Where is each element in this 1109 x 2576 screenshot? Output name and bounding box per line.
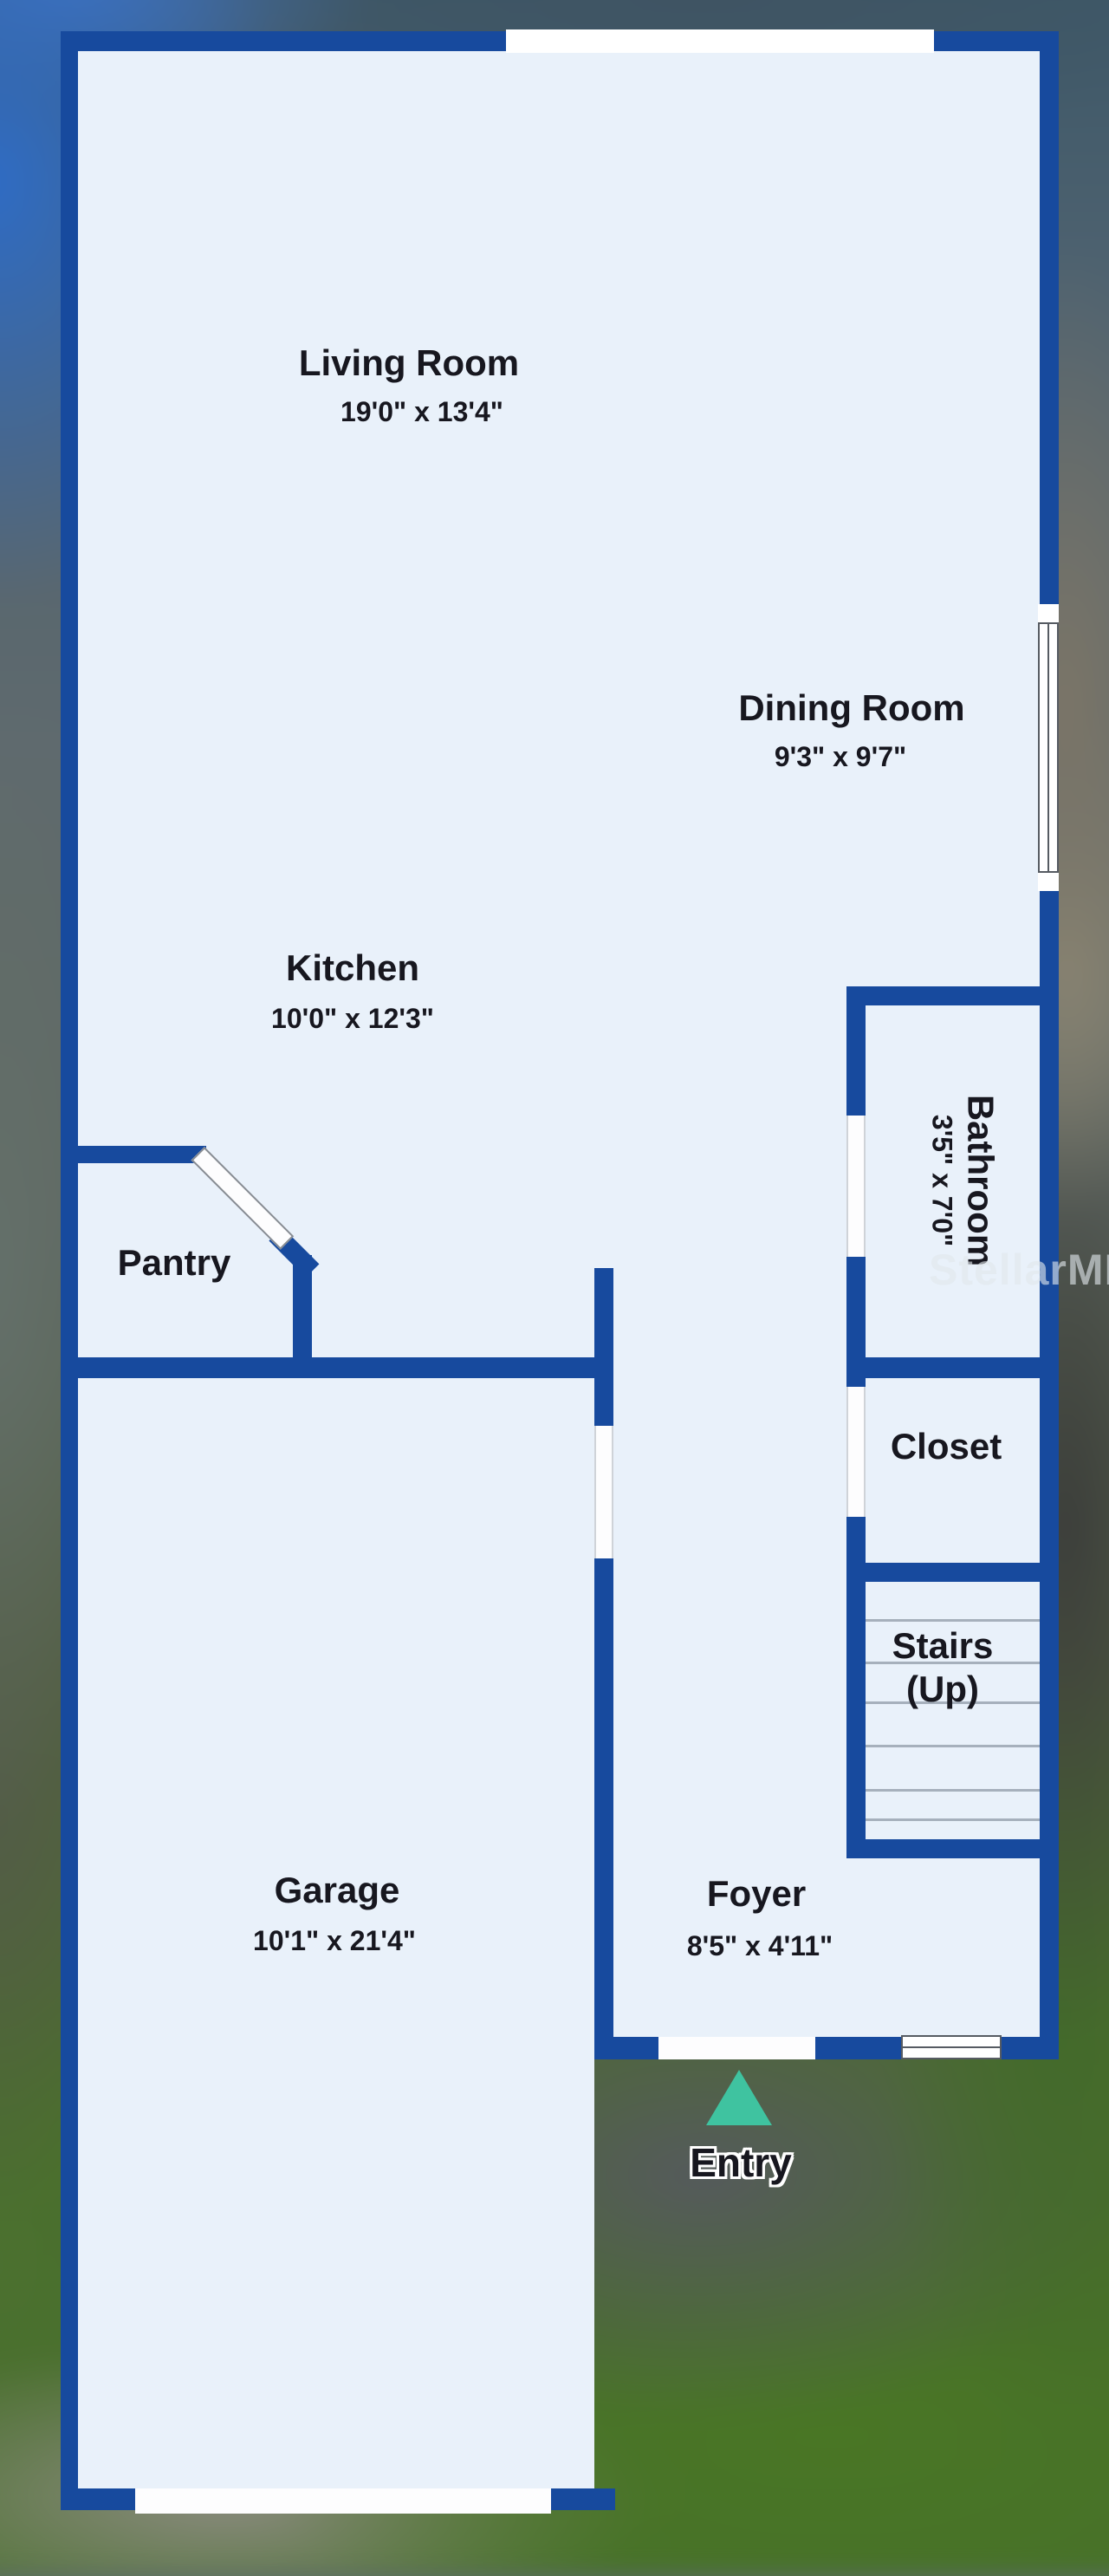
room-label-bathroom: Bathroom 3'5" x 7'0" bbox=[925, 1095, 1002, 1266]
floor-garage bbox=[78, 2037, 594, 2488]
wall-closet-top bbox=[846, 1357, 1059, 1378]
window-right bbox=[1038, 622, 1059, 873]
room-label-stairs-line2: (Up) bbox=[892, 1668, 994, 1711]
room-label-foyer: Foyer bbox=[707, 1872, 806, 1916]
room-label-stairs-line1: Stairs bbox=[892, 1624, 994, 1668]
stair-tread bbox=[866, 1745, 1040, 1747]
bathroom-door-opening bbox=[846, 1116, 866, 1257]
entry-arrow-icon bbox=[706, 2070, 772, 2125]
wall-stairs-top bbox=[846, 1563, 1059, 1582]
room-label-garage: Garage bbox=[275, 1869, 400, 1912]
window-glass-line bbox=[1047, 624, 1049, 871]
room-label-pantry: Pantry bbox=[118, 1241, 231, 1285]
room-label-closet: Closet bbox=[891, 1425, 1002, 1468]
watermark: StellarMLS bbox=[929, 1245, 1109, 1295]
closet-door-opening bbox=[846, 1387, 866, 1517]
window-foyer bbox=[901, 2035, 1002, 2059]
entry-label: Entry bbox=[690, 2139, 792, 2186]
front-door-opening bbox=[658, 2037, 815, 2059]
wall-stairs-bottom bbox=[866, 1839, 1059, 1858]
room-label-living-room: Living Room bbox=[299, 342, 519, 385]
window-top bbox=[506, 29, 934, 53]
stair-tread bbox=[866, 1789, 1040, 1792]
wall-garage-top bbox=[61, 1357, 613, 1378]
wall-foyer-left bbox=[594, 1268, 613, 2048]
garage-door-opening-interior bbox=[594, 1426, 613, 1558]
room-dims-kitchen: 10'0" x 12'3" bbox=[271, 1002, 434, 1035]
room-dims-living-room: 19'0" x 13'4" bbox=[340, 395, 503, 428]
floor-plan: Living Room 19'0" x 13'4" Dining Room 9'… bbox=[0, 0, 1109, 2541]
room-label-bathroom-name: Bathroom bbox=[958, 1095, 1002, 1266]
window-glass-line bbox=[903, 2046, 1000, 2048]
wall-left bbox=[61, 31, 78, 2510]
room-dims-bathroom: 3'5" x 7'0" bbox=[925, 1095, 958, 1266]
wall-right bbox=[1040, 31, 1059, 2059]
room-dims-garage: 10'1" x 21'4" bbox=[253, 1924, 416, 1957]
stair-tread bbox=[866, 1818, 1040, 1821]
room-label-stairs: Stairs (Up) bbox=[892, 1624, 994, 1712]
wall-bathroom-top bbox=[846, 986, 1059, 1005]
room-label-dining-room: Dining Room bbox=[738, 686, 964, 730]
floor-main bbox=[78, 51, 1040, 2037]
stair-tread bbox=[866, 1619, 1040, 1622]
room-label-kitchen: Kitchen bbox=[286, 946, 419, 990]
room-dims-dining-room: 9'3" x 9'7" bbox=[775, 740, 906, 773]
garage-vehicle-door-opening bbox=[135, 2488, 551, 2514]
wall-pantry-top bbox=[61, 1146, 206, 1163]
room-dims-foyer: 8'5" x 4'11" bbox=[687, 1929, 833, 1962]
